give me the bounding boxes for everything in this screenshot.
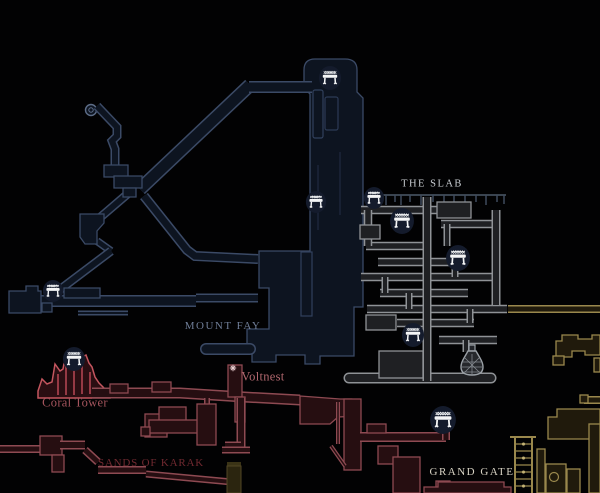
bench-marker-icon (402, 323, 424, 347)
bench-marker-icon (430, 406, 456, 434)
bench-marker-icon (364, 187, 384, 209)
bench-marker-icon (319, 66, 341, 90)
bench-marker-icon (43, 280, 63, 302)
bench-marker-icon (390, 208, 414, 234)
bench-marker-icon (63, 347, 85, 371)
bench-marker-icon (306, 191, 326, 213)
shaft-bar (227, 466, 241, 493)
game-map-view[interactable]: THE SLAB MOUNT FAY Coral Tower Voltnest … (0, 0, 600, 493)
bench-marker-icon (446, 245, 470, 271)
game-map-canvas (0, 0, 600, 493)
